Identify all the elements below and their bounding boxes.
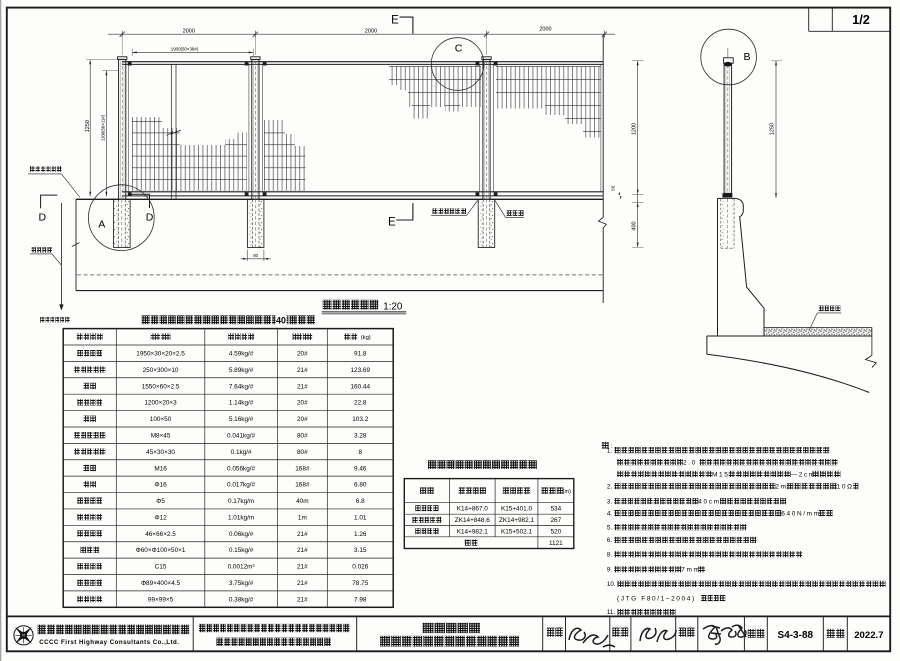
svg-text:1.26: 1.26 bbox=[354, 531, 367, 538]
svg-text:0.0012m³: 0.0012m³ bbox=[228, 564, 255, 571]
svg-text:5.16kg/#: 5.16kg/# bbox=[229, 416, 254, 423]
svg-text:S4-3-88: S4-3-88 bbox=[778, 630, 814, 641]
svg-text:267: 267 bbox=[551, 517, 562, 524]
svg-text:99×99×5: 99×99×5 bbox=[148, 596, 174, 603]
svg-text:20#: 20# bbox=[297, 350, 308, 357]
svg-text:21#: 21# bbox=[297, 564, 308, 571]
svg-text:2000: 2000 bbox=[365, 28, 377, 34]
svg-text:1121: 1121 bbox=[549, 540, 563, 547]
svg-text:20#: 20# bbox=[297, 416, 308, 423]
svg-text:K15+401.0: K15+401.0 bbox=[501, 506, 533, 513]
svg-text:E: E bbox=[391, 15, 399, 27]
svg-text:0.38kg/#: 0.38kg/# bbox=[229, 596, 254, 603]
svg-text:1200: 1200 bbox=[631, 123, 637, 135]
svg-text:(kg): (kg) bbox=[361, 335, 371, 341]
svg-text:22.8: 22.8 bbox=[354, 400, 367, 407]
svg-text:0.17kg/m: 0.17kg/m bbox=[228, 498, 254, 505]
svg-text:(JTG F80/1–2004): (JTG F80/1–2004) bbox=[617, 596, 696, 603]
svg-text:1250: 1250 bbox=[85, 120, 91, 132]
svg-text:(m): (m) bbox=[563, 489, 572, 495]
svg-text:E: E bbox=[388, 216, 396, 228]
svg-text:CCCC First Highway Consultants: CCCC First Highway Consultants Co.,Ltd. bbox=[39, 639, 179, 646]
svg-text:2000: 2000 bbox=[183, 28, 195, 34]
svg-text:168#: 168# bbox=[295, 482, 310, 489]
svg-text:2.: 2. bbox=[607, 483, 613, 490]
svg-text:640N/mm: 640N/mm bbox=[781, 511, 820, 518]
svg-text:M15: M15 bbox=[712, 471, 729, 478]
svg-text:ZK14+848.6: ZK14+848.6 bbox=[455, 517, 490, 524]
svg-text:Φ16: Φ16 bbox=[154, 482, 167, 489]
svg-text:10Ω: 10Ω bbox=[837, 484, 854, 491]
svg-text:Φ60×Φ100×50×1: Φ60×Φ100×50×1 bbox=[136, 547, 186, 554]
svg-text:0.017kg/#: 0.017kg/# bbox=[227, 482, 256, 489]
svg-text:K15+502.1: K15+502.1 bbox=[501, 528, 533, 535]
svg-text:21#: 21# bbox=[297, 580, 308, 587]
svg-text:2000: 2000 bbox=[539, 26, 551, 32]
svg-text:2022.7: 2022.7 bbox=[854, 630, 883, 641]
svg-text:1550×60×2.5: 1550×60×2.5 bbox=[142, 383, 180, 390]
svg-text:11.: 11. bbox=[607, 609, 616, 616]
svg-text:21#: 21# bbox=[297, 596, 308, 603]
svg-text:C15: C15 bbox=[155, 564, 167, 571]
svg-text:M16: M16 bbox=[154, 465, 167, 472]
svg-text:9.: 9. bbox=[607, 567, 613, 574]
svg-text:21#: 21# bbox=[297, 547, 308, 554]
svg-text:Φ12: Φ12 bbox=[154, 514, 167, 521]
svg-text:91.8: 91.8 bbox=[354, 350, 367, 357]
svg-text:D: D bbox=[146, 212, 154, 224]
svg-text:50: 50 bbox=[610, 185, 615, 191]
svg-text:M8×45: M8×45 bbox=[151, 432, 171, 439]
svg-text:78.75: 78.75 bbox=[352, 580, 368, 587]
svg-text:3.28: 3.28 bbox=[354, 432, 367, 439]
svg-text:4.: 4. bbox=[607, 510, 613, 517]
svg-text:1.14kg/#: 1.14kg/# bbox=[229, 400, 254, 407]
svg-text:7mm: 7mm bbox=[681, 567, 700, 574]
svg-text:0.041kg/#: 0.041kg/# bbox=[227, 432, 256, 439]
svg-text:6.80: 6.80 bbox=[354, 482, 367, 489]
svg-text:1/2: 1/2 bbox=[852, 12, 870, 27]
svg-text:40m: 40m bbox=[296, 498, 308, 505]
svg-text:3.: 3. bbox=[607, 498, 613, 505]
svg-text:21#: 21# bbox=[297, 367, 308, 374]
svg-text:0.1kg/#: 0.1kg/# bbox=[231, 449, 252, 456]
svg-text:2.0: 2.0 bbox=[683, 460, 697, 467]
svg-text:9.46: 9.46 bbox=[354, 465, 367, 472]
svg-text:1900(50×38#): 1900(50×38#) bbox=[171, 47, 199, 52]
svg-text:ZK14+982.1: ZK14+982.1 bbox=[499, 517, 534, 524]
svg-text:103.2: 103.2 bbox=[352, 416, 368, 423]
svg-text:21#: 21# bbox=[297, 383, 308, 390]
svg-text:7.98: 7.98 bbox=[354, 596, 367, 603]
svg-text:1250: 1250 bbox=[770, 123, 776, 135]
svg-text:0.026: 0.026 bbox=[352, 564, 368, 571]
svg-text:1950×30×20×2.5: 1950×30×20×2.5 bbox=[136, 350, 185, 357]
svg-text:K14+982.1: K14+982.1 bbox=[457, 528, 489, 535]
svg-text:3.75kg/#: 3.75kg/# bbox=[229, 580, 254, 587]
svg-text:8.: 8. bbox=[607, 552, 613, 559]
svg-text:1200×20×3: 1200×20×3 bbox=[144, 400, 177, 407]
svg-text:—2cm: —2cm bbox=[791, 471, 816, 478]
svg-text:6.8: 6.8 bbox=[356, 498, 365, 505]
svg-text:6.: 6. bbox=[607, 537, 613, 544]
svg-text:123.69: 123.69 bbox=[350, 367, 370, 374]
svg-text:Φ5: Φ5 bbox=[156, 498, 165, 505]
svg-text:400: 400 bbox=[631, 221, 637, 230]
svg-text:B: B bbox=[743, 51, 750, 63]
svg-text:1:20: 1:20 bbox=[383, 301, 403, 312]
svg-text:0.06kg/#: 0.06kg/# bbox=[229, 531, 254, 538]
svg-text:80: 80 bbox=[253, 253, 258, 258]
svg-text:45×30×30: 45×30×30 bbox=[146, 449, 175, 456]
svg-text:K14+867.0: K14+867.0 bbox=[457, 506, 489, 513]
svg-text:5.: 5. bbox=[607, 524, 613, 531]
svg-text:Φ89×400×4.5: Φ89×400×4.5 bbox=[141, 580, 181, 587]
svg-text:1.01: 1.01 bbox=[354, 514, 367, 521]
svg-text:40cm: 40cm bbox=[698, 499, 720, 506]
svg-text:2m: 2m bbox=[775, 484, 787, 491]
svg-text:250×300×10: 250×300×10 bbox=[143, 367, 179, 374]
svg-text:0.15kg/#: 0.15kg/# bbox=[229, 547, 254, 554]
svg-text:80#: 80# bbox=[297, 432, 308, 439]
svg-text:168#: 168# bbox=[295, 465, 310, 472]
svg-text:1.01kg/m: 1.01kg/m bbox=[228, 514, 254, 521]
svg-text:520: 520 bbox=[551, 528, 562, 535]
svg-text:7.64kg/#: 7.64kg/# bbox=[229, 383, 254, 390]
svg-text:8: 8 bbox=[358, 449, 362, 456]
svg-text:1m: 1m bbox=[298, 514, 307, 521]
svg-text:4.59kg/#: 4.59kg/# bbox=[229, 350, 254, 357]
svg-text:21#: 21# bbox=[297, 531, 308, 538]
svg-text:40: 40 bbox=[276, 315, 286, 325]
svg-text:20#: 20# bbox=[297, 400, 308, 407]
svg-text:3.15: 3.15 bbox=[354, 547, 367, 554]
svg-text:1100(50×11#): 1100(50×11#) bbox=[101, 114, 106, 141]
svg-text:100×50: 100×50 bbox=[150, 416, 172, 423]
svg-text:160.44: 160.44 bbox=[350, 383, 370, 390]
svg-text:A: A bbox=[98, 219, 105, 231]
svg-text:D: D bbox=[39, 212, 47, 224]
svg-text:0.056kg/#: 0.056kg/# bbox=[227, 465, 256, 472]
svg-text:534: 534 bbox=[551, 506, 562, 513]
svg-text:C: C bbox=[455, 43, 463, 55]
svg-text:80#: 80# bbox=[297, 449, 308, 456]
svg-text:1.: 1. bbox=[607, 447, 613, 454]
svg-text:5.89kg/#: 5.89kg/# bbox=[229, 367, 254, 374]
svg-text:46×66×2.5: 46×66×2.5 bbox=[145, 531, 176, 538]
svg-text:10.: 10. bbox=[607, 581, 616, 588]
